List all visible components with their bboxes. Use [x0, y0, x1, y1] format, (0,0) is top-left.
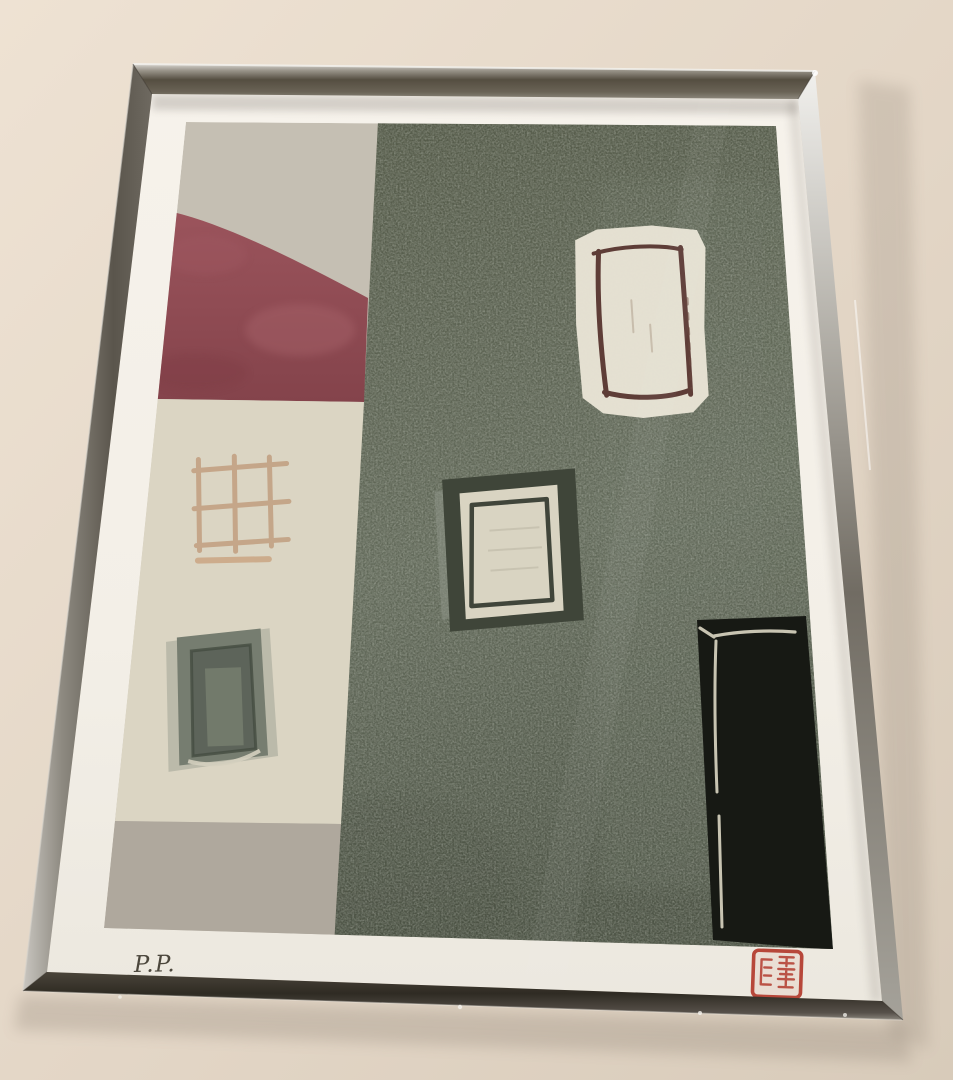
frame-glint-1 [458, 1005, 462, 1009]
frame-glint-3 [118, 995, 122, 999]
grey-window-core [205, 667, 244, 746]
frame-glint-2 [698, 1011, 702, 1015]
scene-canvas: P.P. [0, 0, 953, 1080]
photo-of-framed-print: P.P. [0, 0, 953, 1080]
ground-strip [104, 821, 341, 945]
middle-window [434, 468, 584, 632]
artist-seal [752, 950, 802, 998]
roof-highlight [245, 304, 355, 356]
house-grey-window [164, 628, 279, 772]
roof-highlight-2 [163, 235, 247, 275]
frame-glint-4 [843, 1013, 847, 1017]
frame-glint-corner [812, 70, 818, 76]
artwork-print [104, 122, 833, 965]
artist-signature: P.P. [133, 951, 177, 978]
